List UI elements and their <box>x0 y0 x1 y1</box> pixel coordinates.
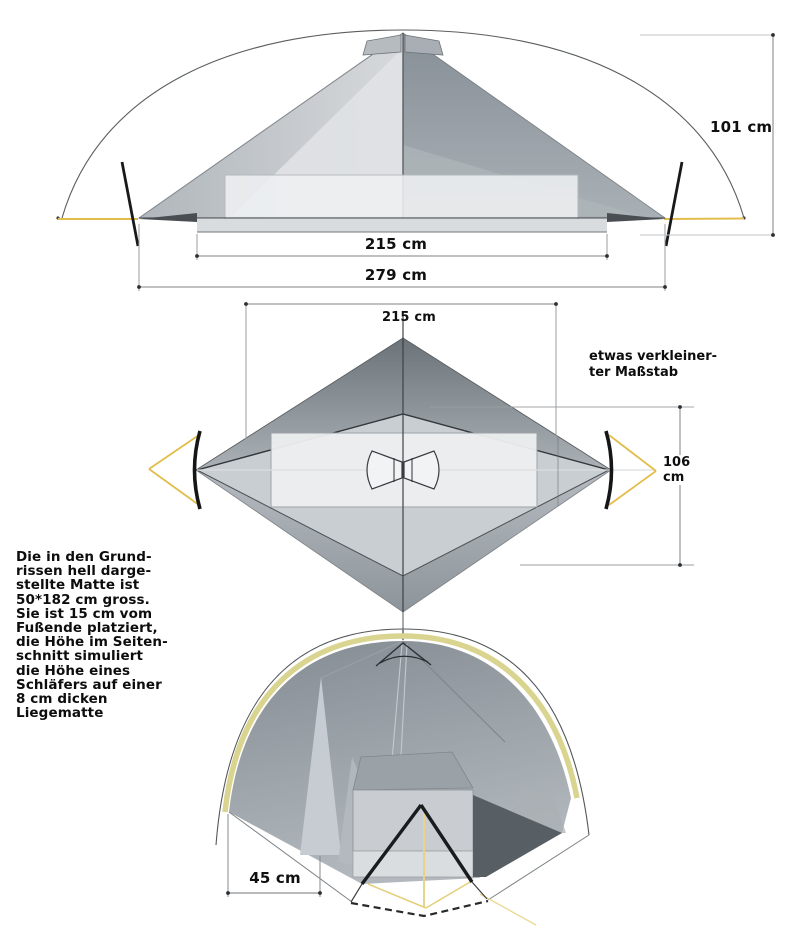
dim-end-dot <box>605 254 609 258</box>
dim-end-dot <box>771 233 775 237</box>
groundsheet-dashed-front <box>351 901 488 916</box>
dim-end-dot <box>678 563 682 567</box>
plan-width-unit: cm <box>663 470 690 485</box>
scale-note-line2: ter Maßstab <box>589 365 717 381</box>
right-peak-vent <box>405 35 443 55</box>
left-pole-stake <box>122 162 138 246</box>
base-guy-line <box>426 882 470 908</box>
mat-box-top <box>353 752 473 790</box>
mat-note-line: 8 cm dicken <box>16 692 196 706</box>
mat-note-line: 50*182 cm gross. <box>16 593 196 607</box>
mat-annotation: Die in den Grund- rissen hell darge- ste… <box>16 550 196 720</box>
plan-guy-line <box>609 471 656 505</box>
front-guy-line <box>480 894 536 925</box>
dim-end-dot <box>244 302 248 306</box>
tent-spec-diagram: 215 cm 279 cm 101 cm 215 cm etwas verkle… <box>0 0 800 940</box>
door-edge-extension <box>351 884 362 902</box>
plan-guy-line <box>149 469 199 505</box>
plan-width-value: 106 <box>663 455 690 470</box>
base-guy-line <box>368 884 426 908</box>
dim-end-dot <box>771 33 775 37</box>
mat-note-line: stellte Matte ist <box>16 578 196 592</box>
dimension-label-plan-length: 215 cm <box>349 310 469 325</box>
dim-end-dot <box>137 285 141 289</box>
scale-note: etwas verkleiner- ter Maßstab <box>589 349 717 380</box>
plan-guy-line <box>609 435 656 471</box>
dimension-label-plan-width: 106 cm <box>661 455 692 485</box>
dim-end-dot <box>678 405 682 409</box>
mat-note-line: Liegematte <box>16 706 196 720</box>
right-guy-line <box>664 219 744 220</box>
mat-note-line: Die in den Grund- <box>16 550 196 564</box>
dimension-label-inner-width: 215 cm <box>336 236 456 253</box>
right-pole-stake <box>666 162 682 246</box>
mat-note-line: Schläfers auf einer <box>16 678 196 692</box>
mat-note-line: die Höhe eines <box>16 664 196 678</box>
door-edge-extension <box>472 882 487 899</box>
mat-note-line: schnitt simuliert <box>16 649 196 663</box>
left-peak-vent <box>363 35 401 55</box>
dim-end-dot <box>226 891 230 895</box>
mat-note-line: Fußende platziert, <box>16 621 196 635</box>
dimension-label-outer-width: 279 cm <box>336 267 456 284</box>
dimension-label-height: 101 cm <box>710 119 772 136</box>
bathtub-floor-band <box>197 219 607 232</box>
plan-guy-line <box>149 435 199 469</box>
mat-note-line: die Höhe im Seiten- <box>16 635 196 649</box>
dim-end-dot <box>318 891 322 895</box>
mat-box-front-upper <box>353 790 473 851</box>
dim-end-dot <box>554 302 558 306</box>
scale-note-line1: etwas verkleiner- <box>589 349 717 365</box>
dim-end-dot <box>663 285 667 289</box>
dimension-label-vestibule: 45 cm <box>220 870 330 887</box>
mat-note-line: Sie ist 15 cm vom <box>16 607 196 621</box>
dim-end-dot <box>195 254 199 258</box>
mat-note-line: rissen hell darge- <box>16 564 196 578</box>
